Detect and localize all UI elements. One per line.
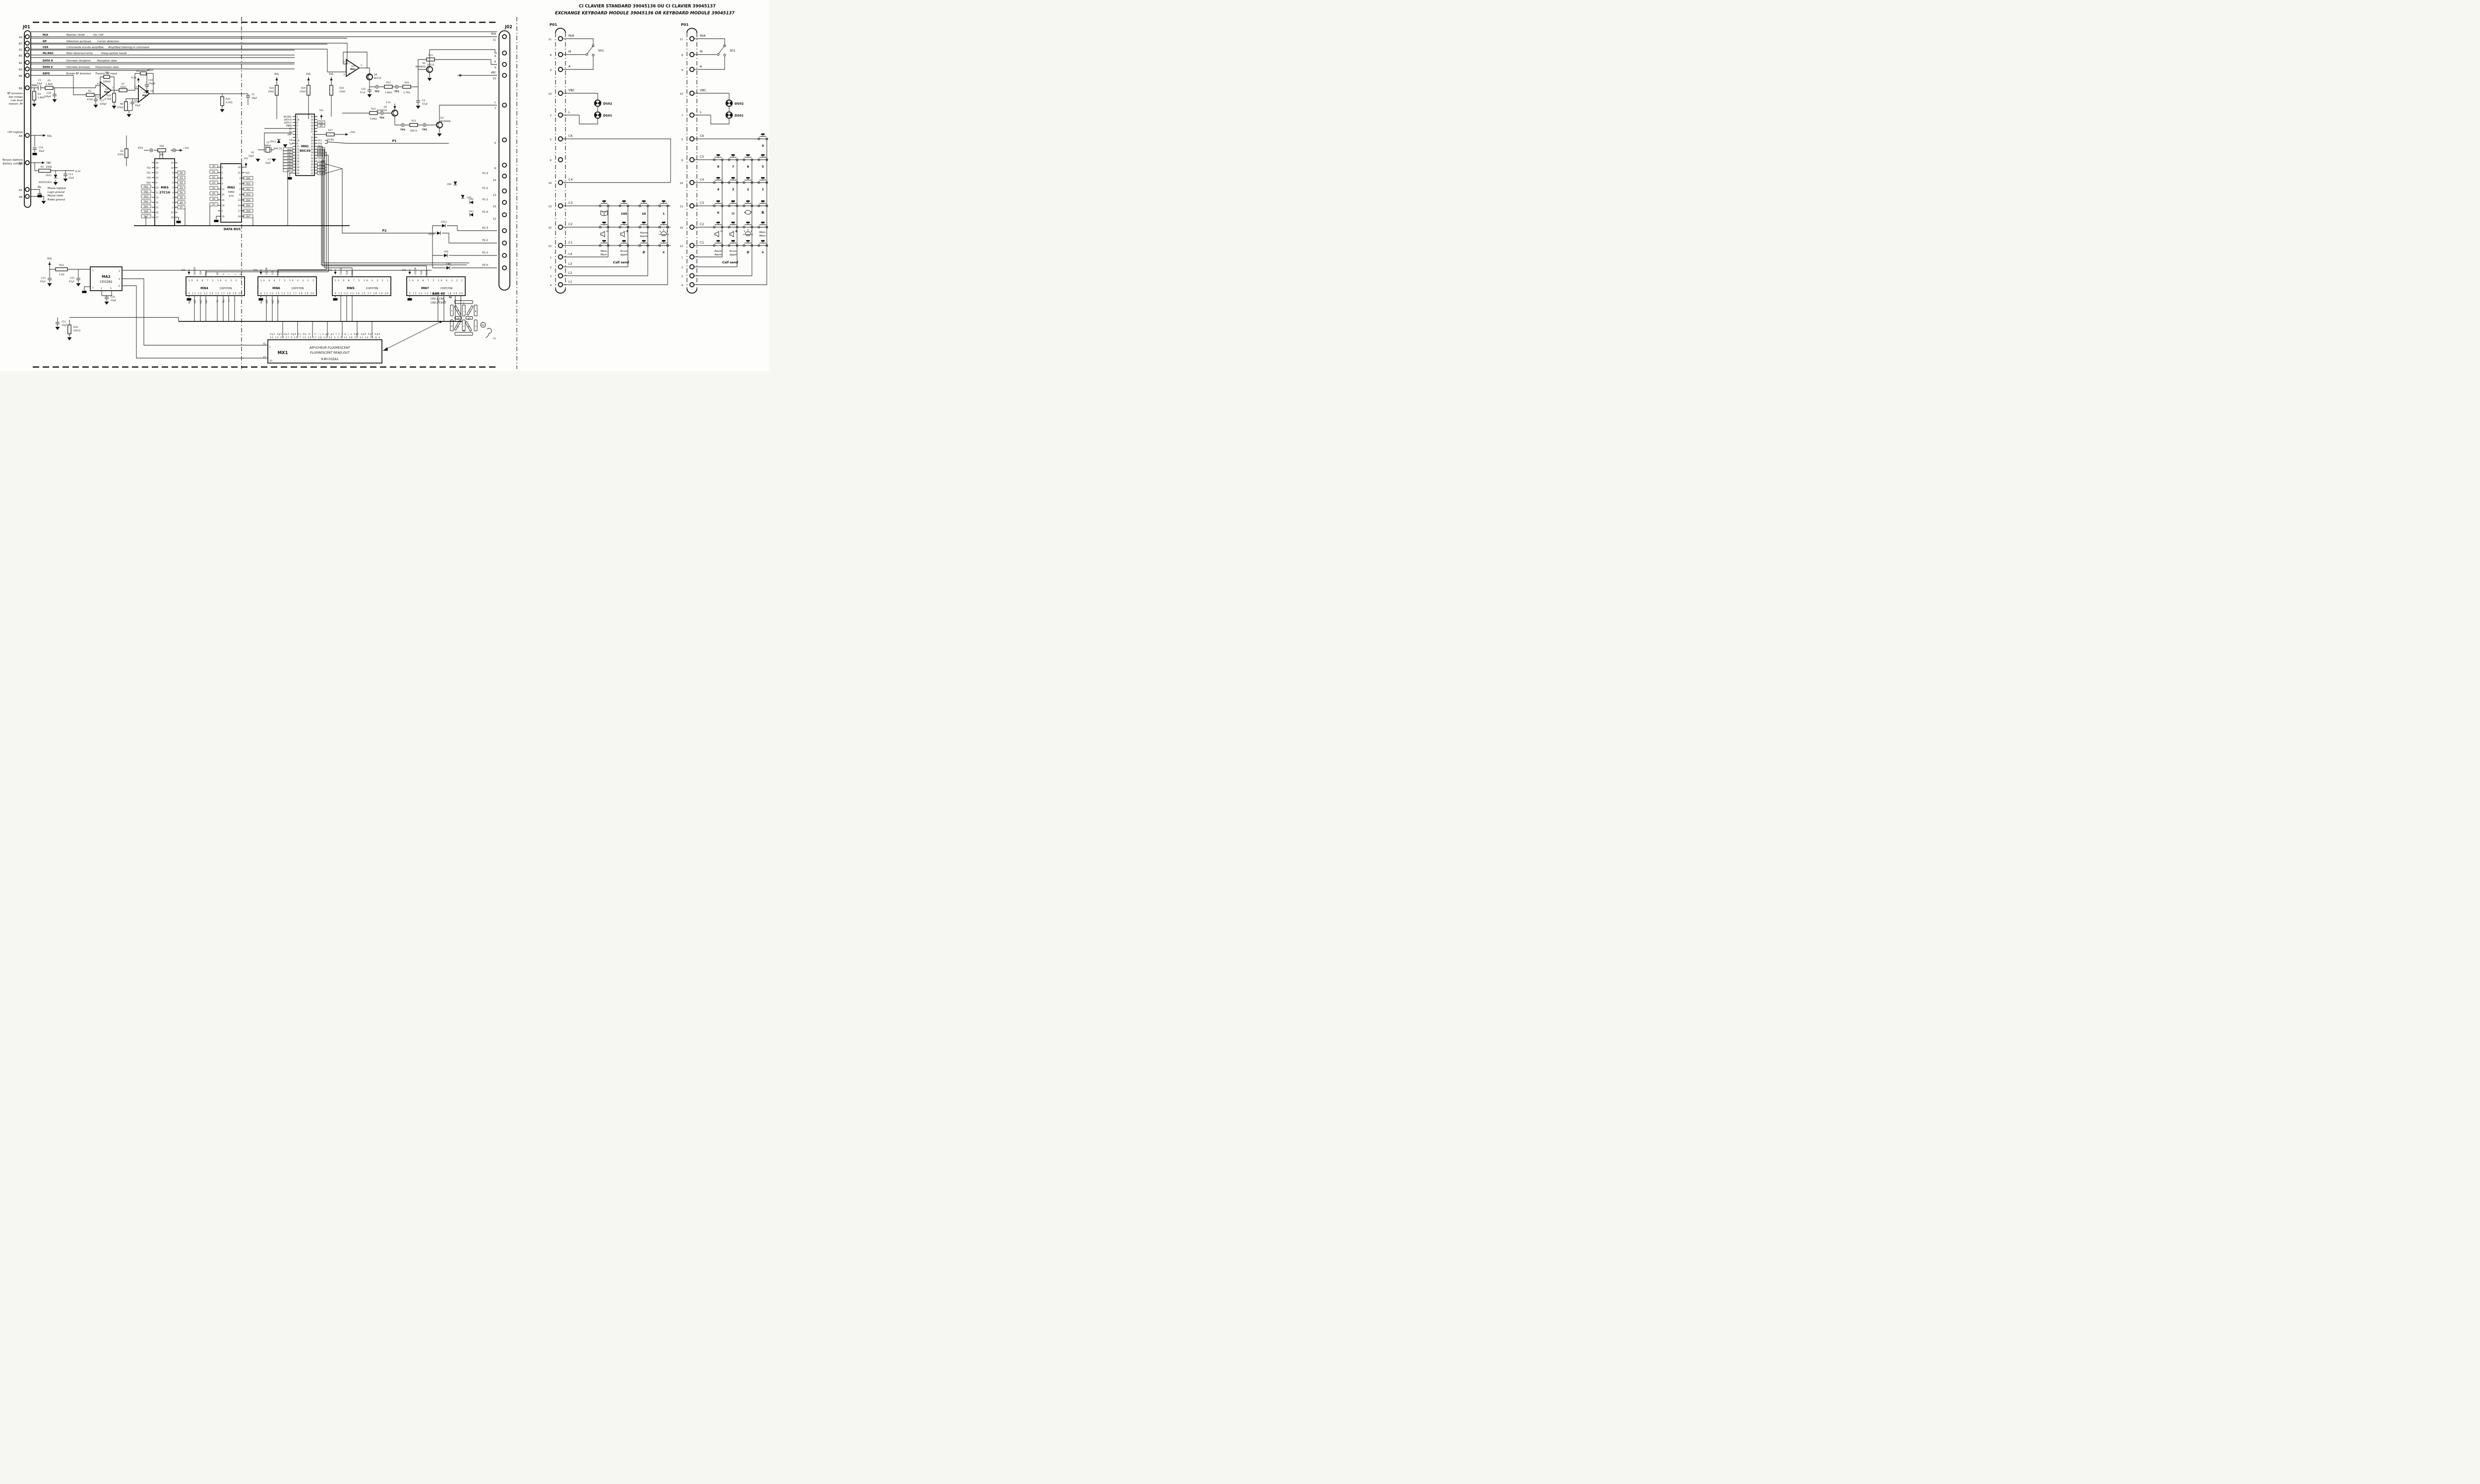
svg-text:Masse radio: Masse radio [48, 194, 63, 197]
svg-text:R37: R37 [328, 129, 332, 132]
svg-text:Y1: Y1 [266, 141, 269, 144]
svg-text:47uF: 47uF [360, 91, 366, 94]
svg-text:C14: C14 [39, 146, 43, 149]
svg-text:CR12: CR12 [46, 174, 52, 177]
svg-text:4: 4 [119, 278, 120, 281]
svg-text:C5: C5 [251, 93, 254, 96]
svg-text:22: 22 [156, 172, 159, 175]
svg-text:C4: C4 [700, 178, 704, 182]
keyboard-module-1: P01 118910756141315121234 M/AMAVBCLC6C4C… [548, 22, 671, 293]
display-pointer [383, 322, 439, 351]
svg-text:4: 4 [172, 191, 174, 194]
envelope-icon: ✉ [732, 211, 735, 216]
svg-text:13: 13 [297, 151, 300, 154]
svg-text:7: 7 [112, 87, 114, 90]
svg-text:C2: C2 [700, 223, 704, 226]
svg-text:14: 14 [680, 182, 683, 185]
svg-text:Tension batterie: Tension batterie [1, 159, 23, 162]
svg-text:15: 15 [493, 205, 496, 208]
svg-text:k: k [468, 325, 470, 328]
kb2-pins [690, 37, 694, 287]
svg-text:+5V logique: +5V logique [7, 131, 23, 134]
svg-text:BCW60D: BCW60D [440, 120, 451, 123]
svg-text:12: 12 [171, 211, 174, 214]
svg-text:100pF: 100pF [44, 95, 52, 98]
svg-text:S01: S01 [730, 49, 736, 53]
svg-text:B1: B1 [19, 62, 22, 65]
svg-text:EBN: EBN [32, 84, 37, 87]
svg-text:10: 10 [680, 93, 683, 96]
speaker-plus-icon [730, 230, 738, 237]
svg-text:Db0: Db0 [246, 177, 250, 180]
svg-text:19: 19 [156, 167, 159, 170]
svg-text:COP370N: COP370N [220, 287, 232, 290]
svg-text:1: 1 [361, 64, 362, 67]
svg-text:1: 1 [762, 188, 764, 191]
svg-text:9: 9 [550, 69, 552, 72]
svg-text:6: 6 [119, 285, 120, 288]
svg-text:MN1: MN1 [301, 145, 309, 148]
svg-text:−: − [140, 89, 142, 92]
svg-text:2,2Ω: 2,2Ω [59, 273, 64, 276]
svg-text:R1: R1 [41, 166, 44, 169]
svg-text:D2: D2 [212, 176, 215, 179]
svg-text:5: 5 [110, 287, 112, 290]
svg-text:80C39: 80C39 [300, 149, 310, 153]
svg-text:P2-2: P2-2 [482, 239, 488, 242]
svg-text:C1: C1 [568, 241, 572, 245]
svg-text:#: # [746, 250, 749, 254]
svg-text:P2-3: P2-3 [482, 227, 488, 230]
svg-text:10kΩ: 10kΩ [268, 90, 274, 93]
svg-text:6: 6 [682, 159, 683, 162]
svg-text:P2-0: P2-0 [482, 264, 488, 267]
svg-text:Transmission data: Transmission data [95, 66, 119, 69]
svg-text:Db5: Db5 [246, 204, 250, 207]
svg-text:5VL: 5VL [47, 135, 52, 138]
svg-text:2,7kΩ: 2,7kΩ [403, 91, 410, 94]
svg-text:P1-2: P1-2 [482, 187, 488, 190]
svg-text:+: + [140, 99, 142, 102]
svg-text:10µF: 10µF [62, 324, 67, 327]
svg-text:5VL: 5VL [253, 269, 258, 272]
kb2-pin-labels: M/AMAVBCLC6C5C4C3C2C1 [700, 34, 706, 245]
svg-text:24: 24 [311, 163, 314, 166]
svg-text:EBFE: EBFE [43, 72, 50, 75]
svg-text:22kΩ: 22kΩ [300, 90, 306, 93]
svg-text:36: 36 [311, 124, 314, 127]
svg-text:11: 11 [548, 38, 552, 41]
svg-text:R24: R24 [59, 264, 63, 267]
svg-text:A: A [494, 61, 496, 63]
svg-text:Db1: Db1 [246, 183, 250, 185]
svg-text:10 KΩ: 10 KΩ [327, 138, 334, 141]
svg-text:R29: R29 [301, 87, 306, 90]
svg-text:28: 28 [311, 151, 314, 154]
ma2-body [90, 267, 122, 291]
svg-text:MN3: MN3 [161, 186, 169, 189]
svg-text:Mem.: Mem. [601, 253, 608, 256]
svg-text:373: 373 [229, 195, 234, 198]
svg-text:13: 13 [238, 199, 241, 202]
svg-text:L4: L4 [568, 252, 572, 256]
svg-text:5: 5 [297, 136, 298, 139]
mn3-pin-numbers: 20192223910111314151617 2124876543211218 [156, 162, 174, 219]
mx1-display-module: MX1 AFFICHEUR FLUORESCENT FLUORESCENT RE… [263, 321, 441, 363]
svg-text:1/4: 1/4 [105, 88, 109, 91]
svg-text:9: 9 [762, 144, 764, 148]
svg-text:11: 11 [238, 172, 241, 175]
svg-text:23: 23 [156, 177, 159, 180]
lamp-icon [743, 229, 753, 236]
kb2-matrix: 9 8 7 6 5 4 3 2 1 0 ✉ R Mém. Mem. Alarm … [694, 133, 768, 285]
svg-text:dg4: dg4 [205, 300, 208, 304]
svg-text:a: a [463, 302, 465, 305]
svg-text:A6: A6 [19, 196, 22, 199]
svg-text:47µF: 47µF [40, 280, 46, 283]
svg-text:−: − [348, 62, 350, 65]
svg-text:10: 10 [297, 139, 300, 142]
kb1-pin-numbers: 118910756141315121234 [548, 38, 552, 287]
svg-text:C2: C2 [568, 223, 572, 226]
svg-text:C6: C6 [700, 134, 704, 138]
svg-text:d: d [463, 329, 465, 332]
svg-text:0: 0 [717, 211, 720, 215]
svg-text:2: 2 [297, 127, 298, 130]
svg-text:NC: NC [216, 272, 219, 275]
svg-text:100Ω: 100Ω [46, 166, 52, 169]
svg-text:Alarm: Alarm [639, 235, 647, 238]
svg-text:14: 14 [150, 90, 153, 93]
redial-cycle-icon [744, 210, 752, 214]
svg-text:Db3: Db3 [246, 193, 250, 196]
mn1-right-pin-numbers: 402639363537725343330292827323124232221 [311, 116, 314, 175]
display-drivers: MN4COP370N 10 9 8 7 5 16 4 3 2 1 6 11 12… [69, 267, 465, 338]
svg-text:3: 3 [297, 130, 298, 133]
svg-text:VBC: VBC [700, 89, 706, 92]
svg-text:26 23 20 17 9 15 7 10 25 27 28: 26 23 20 17 9 15 7 10 25 27 28 12 24 5 3… [270, 336, 380, 339]
svg-text:8: 8 [717, 165, 719, 169]
svg-text:13: 13 [680, 205, 683, 208]
svg-text:C10: C10 [111, 296, 115, 299]
svg-text:2: 2 [343, 61, 345, 63]
svg-text:dg1: dg1 [260, 300, 263, 304]
svg-text:CR11: CR11 [441, 221, 447, 224]
svg-text:Données réception: Données réception [66, 59, 91, 62]
svg-text:6MHz: 6MHz [265, 144, 271, 147]
svg-text:Db1: Db1 [144, 185, 148, 188]
svg-text:4: 4 [297, 133, 298, 136]
svg-text:1: 1 [663, 212, 665, 216]
svg-text:16: 16 [297, 160, 300, 163]
svg-text:L: L [495, 101, 496, 104]
svg-text:R13: R13 [411, 120, 416, 123]
svg-text:Co: Co [493, 337, 496, 340]
svg-text:2: 2 [172, 201, 174, 204]
svg-text:8,2V: 8,2V [75, 170, 81, 173]
svg-text:RST: RST [288, 133, 292, 136]
svg-text:26: 26 [311, 119, 314, 122]
svg-text:17: 17 [297, 163, 300, 166]
svg-text:AFFICHEUR FLUORESCENT: AFFICHEUR FLUORESCENT [310, 346, 350, 350]
svg-text:R2: R2 [121, 150, 124, 153]
svg-text:C16: C16 [47, 92, 51, 95]
keyboard-module-2: P01 118910756141315121234 M/AMAVBCLC6C5C… [680, 22, 768, 293]
svg-text:C12: C12 [70, 277, 74, 280]
svg-text:10 9 8 7 5 16 4 3 2 1: 10 9 8 7 5 16 4 3 2 1 [260, 279, 314, 282]
svg-text:27C16: 27C16 [159, 191, 170, 194]
svg-text:100kΩ: 100kΩ [103, 80, 111, 83]
svg-text:CR3 à CR6: CR3 à CR6 [431, 297, 444, 301]
svg-text:P23: P23 [138, 147, 143, 150]
svg-text:24: 24 [171, 167, 174, 170]
svg-text:13: 13 [156, 196, 159, 199]
kb2-lamps: DS02 DS01 [694, 93, 744, 124]
svg-text:8: 8 [239, 193, 241, 196]
svg-text:VBC: VBC [46, 162, 52, 165]
svg-text:BCF32: BCF32 [374, 77, 381, 80]
svg-text:34: 34 [311, 139, 314, 142]
svg-text:9: 9 [495, 66, 496, 69]
svg-text:Alarm: Alarm [714, 253, 722, 256]
svg-text:10: 10 [548, 93, 552, 96]
svg-text:dg4: dg4 [277, 300, 280, 304]
svg-text:Mém.: Mém. [601, 249, 608, 253]
svg-text:h: h [222, 273, 225, 275]
svg-text:f: f [451, 310, 452, 313]
svg-text:R6: R6 [105, 71, 108, 74]
svg-text:D4: D4 [180, 191, 183, 194]
svg-text:MN4: MN4 [200, 287, 208, 290]
svg-text:DS02: DS02 [735, 102, 744, 106]
svg-text:13: 13 [493, 194, 496, 197]
svg-text:R3: R3 [88, 90, 91, 93]
svg-text:19: 19 [222, 204, 225, 207]
svg-text:CR6: CR6 [447, 183, 451, 186]
svg-text:Db4: Db4 [144, 200, 148, 203]
svg-text:COP370N: COP370N [366, 287, 378, 290]
svg-text:3: 3 [732, 188, 734, 191]
svg-text:dg1 dg2 dg3 dg4 Co Dp m l h i: dg1 dg2 dg3 dg4 Co Dp m l h i j k g2 g1 … [270, 333, 380, 336]
kb1-pins [558, 37, 563, 287]
svg-text:68kΩ: 68kΩ [147, 69, 154, 72]
svg-text:TP4: TP4 [400, 128, 405, 131]
svg-text:MN7: MN7 [421, 287, 429, 290]
bus-wires [206, 140, 469, 277]
svg-text:20: 20 [238, 166, 241, 169]
svg-text:3: 3 [239, 177, 241, 180]
svg-text:11: 11 [493, 39, 496, 42]
svg-text:C3: C3 [700, 201, 704, 205]
svg-text:i: i [463, 310, 464, 313]
svg-text:DS01: DS01 [603, 114, 612, 118]
svg-text:6,8kΩ: 6,8kΩ [370, 118, 377, 121]
svg-text:*: * [762, 250, 764, 255]
svg-text:m: m [228, 300, 231, 302]
svg-text:3: 3 [343, 73, 345, 76]
svg-text:i: i [228, 274, 231, 275]
svg-text:2: 2 [682, 266, 683, 269]
svg-text:g1: g1 [457, 317, 460, 320]
svg-text:33pF: 33pF [248, 155, 254, 158]
svg-text:10µF: 10µF [111, 299, 117, 302]
svg-text:6 11 12 13 14 15 17 18: 6 11 12 13 14 15 17 18 19 20 [260, 292, 314, 295]
svg-text:29: 29 [311, 148, 314, 151]
svg-text:21: 21 [311, 172, 314, 175]
svg-text:Alarm: Alarm [714, 250, 722, 253]
svg-text:18: 18 [171, 216, 174, 219]
segment-display-glyph: BAR 43 CR3 à CR6 CR8 à CR11 to a f h i j… [431, 292, 496, 340]
svg-text:C4: C4 [568, 178, 572, 182]
svg-text:15: 15 [156, 206, 159, 209]
svg-text:100 Ω: 100 Ω [73, 329, 80, 332]
svg-text:Db5: Db5 [144, 205, 148, 208]
svg-text:D3: D3 [180, 186, 183, 189]
comma-icon [486, 328, 492, 338]
svg-text:DATA R: DATA R [284, 119, 292, 122]
svg-text:On / Off: On / Off [93, 34, 104, 37]
svg-text:7: 7 [732, 165, 734, 169]
svg-text:X1: X1 [289, 127, 292, 130]
svg-text:M/A: M/A [491, 33, 496, 36]
svg-text:D6: D6 [180, 201, 183, 204]
svg-text:3: 3 [550, 275, 552, 278]
svg-text:P1-0: P1-0 [482, 211, 488, 214]
svg-text:P17: P17 [318, 139, 322, 142]
scan-diodes: CR6 CR5 CR4 CR3 CR11 CR10 CR9 CR8 [429, 143, 497, 270]
svg-text:10µF: 10µF [251, 97, 257, 100]
svg-text:1: 1 [92, 269, 94, 272]
svg-text:13: 13 [548, 205, 552, 208]
svg-text:ML: ML [38, 186, 41, 189]
svg-text:47kΩ: 47kΩ [117, 106, 124, 109]
svg-text:MA2: MA2 [102, 274, 111, 279]
svg-text:11: 11 [680, 38, 683, 41]
svg-text:D3: D3 [212, 182, 215, 185]
lamp-icon [659, 229, 669, 236]
svg-text:5VL: 5VL [402, 269, 407, 272]
svg-text:BZX55C8V2: BZX55C8V2 [39, 181, 52, 184]
svg-text:D1: D1 [180, 177, 183, 180]
display-supply: 5VL R242,2Ω C1547µF C1247µF MA2 CEO282 1… [40, 257, 432, 358]
svg-text:CEO282: CEO282 [100, 280, 113, 284]
svg-text:23: 23 [311, 166, 314, 169]
svg-text:9-BY-03ZA1: 9-BY-03ZA1 [321, 358, 338, 361]
svg-text:C6: C6 [251, 151, 254, 154]
svg-text:Db7: Db7 [144, 215, 148, 218]
svg-text:Mem.: Mem. [759, 235, 766, 238]
svg-text:15: 15 [548, 227, 552, 230]
svg-text:Db4: Db4 [246, 199, 250, 202]
svg-text:P2-1: P2-1 [482, 251, 488, 254]
svg-text:7: 7 [495, 107, 496, 110]
svg-text:DS01: DS01 [735, 114, 744, 118]
svg-text:C13: C13 [68, 173, 73, 176]
svg-text:R36: R36 [159, 145, 164, 148]
svg-text:R31: R31 [371, 108, 375, 111]
svg-text:VBC: VBC [491, 71, 496, 74]
svg-text:1µF: 1µF [289, 142, 294, 145]
svg-text:P16: P16 [318, 142, 322, 145]
svg-text:5VL: 5VL [47, 257, 52, 260]
svg-text:9: 9 [156, 182, 157, 185]
svg-text:P21: P21 [147, 172, 151, 175]
svg-text:4,7kΩ: 4,7kΩ [226, 101, 233, 104]
svg-text:16: 16 [222, 199, 225, 202]
svg-text:C15: C15 [41, 277, 46, 280]
svg-text:18: 18 [238, 215, 241, 218]
svg-text:MN2: MN2 [227, 186, 235, 189]
sheet-frame [33, 17, 517, 369]
speaker-minus-icon [715, 231, 723, 237]
svg-text:MA1: MA1 [104, 91, 110, 94]
svg-text:Db3: Db3 [144, 195, 148, 198]
svg-text:5VL: 5VL [306, 73, 311, 76]
keyboard-headers: CI CLAVIER STANDARD 39045136 OU CI CLAVI… [555, 3, 735, 15]
svg-text:C20: C20 [361, 88, 366, 91]
svg-text:Q1: Q1 [422, 62, 426, 65]
svg-text:2: 2 [550, 266, 552, 269]
svg-text:R34: R34 [269, 87, 274, 90]
svg-text:D5: D5 [212, 192, 215, 195]
svg-text:C1: C1 [700, 241, 704, 245]
svg-text:+5VL: +5VL [183, 147, 189, 150]
svg-text:P2: P2 [382, 229, 387, 233]
svg-text:5: 5 [97, 96, 99, 99]
svg-text:VBC: VBC [568, 89, 575, 92]
kb2-pin-numbers: 118910756141315121234 [680, 38, 683, 287]
svg-text:6: 6 [222, 177, 223, 180]
svg-text:C8: C8 [289, 139, 292, 142]
svg-text:BAS 16: BAS 16 [274, 147, 282, 150]
svg-text:M/A: M/A [700, 34, 706, 38]
svg-text:L: L [700, 111, 702, 114]
svg-text:CR4: CR4 [469, 198, 473, 201]
svg-text:21: 21 [171, 162, 174, 165]
svg-text:M: M [568, 50, 571, 54]
svg-text:1: 1 [172, 206, 174, 209]
svg-text:L3: L3 [568, 262, 572, 266]
svg-text:−: − [102, 85, 104, 88]
svg-text:100pF: 100pF [100, 103, 107, 106]
svg-text:6: 6 [172, 182, 174, 185]
svg-text:CI CLAVIER STANDARD 39045136: CI CLAVIER STANDARD 39045136 OU CI CLAVI… [579, 3, 716, 8]
svg-text:20: 20 [297, 172, 300, 175]
svg-text:1,8kΩ: 1,8kΩ [385, 91, 392, 94]
svg-text:CR3: CR3 [469, 210, 473, 213]
svg-text:8: 8 [682, 54, 683, 57]
svg-text:3: 3 [682, 275, 683, 278]
svg-text:12: 12 [297, 148, 300, 151]
svg-text:P12: P12 [351, 271, 354, 275]
svg-text:+: + [348, 72, 350, 75]
svg-text:MN5: MN5 [347, 287, 355, 290]
svg-text:14: 14 [548, 182, 552, 185]
svg-text:R: R [761, 210, 764, 215]
data-bus-risers [146, 170, 288, 226]
svg-text:appel: appel [620, 253, 627, 256]
svg-text:R10: R10 [404, 81, 409, 84]
svg-text:dg2: dg2 [265, 300, 268, 304]
svg-text:e: e [451, 325, 453, 328]
svg-text:D1: D1 [212, 171, 215, 174]
svg-text:Données émission: Données émission [66, 65, 90, 69]
svg-text:MA1: MA1 [350, 68, 356, 71]
svg-text:D0: D0 [212, 165, 215, 168]
svg-text:0Ω: 0Ω [160, 153, 164, 156]
svg-text:100 Ω: 100 Ω [427, 63, 434, 66]
svg-text:Carrier detection: Carrier detection [97, 40, 119, 43]
